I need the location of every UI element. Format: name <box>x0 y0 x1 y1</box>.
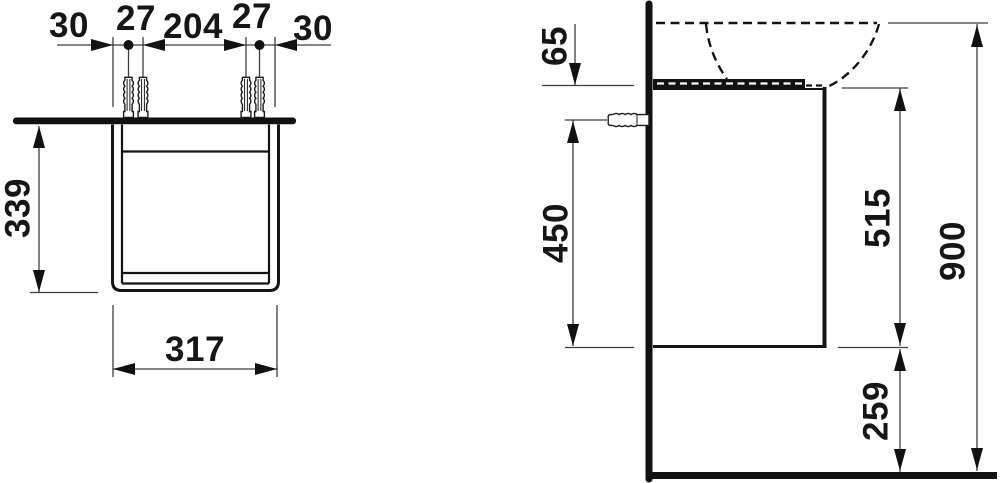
wall-plug <box>124 77 134 117</box>
arrowhead <box>567 121 579 143</box>
basin-bowl-left-dashed <box>706 24 727 79</box>
wall-plug <box>138 77 148 117</box>
dim-label-259: 259 <box>856 381 895 441</box>
dim-label-65: 65 <box>535 26 574 66</box>
dimension-dot <box>124 40 134 50</box>
arrowhead <box>33 270 45 292</box>
wall-plug-side <box>608 113 649 126</box>
arrowhead <box>567 324 579 346</box>
arrowhead <box>224 39 246 51</box>
dim-label-450: 450 <box>536 203 575 263</box>
dim-label-317: 317 <box>165 330 225 369</box>
technical-drawing-page: 30 27 204 27 30 339 317 <box>0 0 1000 483</box>
wall-plug <box>241 77 251 117</box>
washbasin-outline-dashed <box>656 23 879 87</box>
arrowhead <box>971 448 983 470</box>
dim-label-515: 515 <box>858 188 897 248</box>
front-view: 30 27 204 27 30 339 317 <box>0 0 333 377</box>
dimension-515: 515 <box>838 88 908 348</box>
dimension-65: 65 <box>535 24 634 86</box>
arrowhead <box>91 39 113 51</box>
arrowhead <box>33 126 45 148</box>
basin-bowl-right-dashed <box>827 24 879 87</box>
vanity-cabinet-front <box>113 125 279 291</box>
dimension-317: 317 <box>113 305 277 377</box>
dim-label-900: 900 <box>933 221 972 281</box>
arrowhead <box>971 25 983 47</box>
wall-plug <box>608 113 649 126</box>
vanity-unit-technical-drawing: 30 27 204 27 30 339 317 <box>0 0 1000 483</box>
arrowhead <box>113 363 135 375</box>
side-view: 65 450 515 259 <box>535 4 997 479</box>
dimension-900: 900 <box>888 23 988 471</box>
dimension-450: 450 <box>536 120 634 348</box>
wall-plug <box>255 77 265 117</box>
dim-label-30-left: 30 <box>49 6 89 45</box>
arrowhead <box>894 449 906 471</box>
dimension-259: 259 <box>856 349 906 472</box>
arrowhead <box>255 363 277 375</box>
dim-label-27-right: 27 <box>232 0 272 36</box>
dim-label-27-left: 27 <box>116 0 156 38</box>
arrowhead <box>143 39 165 51</box>
dimension-339: 339 <box>0 126 98 293</box>
dim-label-30-right: 30 <box>293 9 333 48</box>
arrowhead <box>894 349 906 371</box>
washbasin-front <box>13 118 296 125</box>
dim-label-204: 204 <box>163 7 223 46</box>
dim-label-339: 339 <box>0 178 37 238</box>
arrowhead <box>894 323 906 345</box>
wall-plugs-front <box>124 77 265 117</box>
arrowhead <box>894 89 906 111</box>
dimension-dot <box>255 40 265 50</box>
dimension-chain-top: 30 27 204 27 30 <box>49 0 333 107</box>
